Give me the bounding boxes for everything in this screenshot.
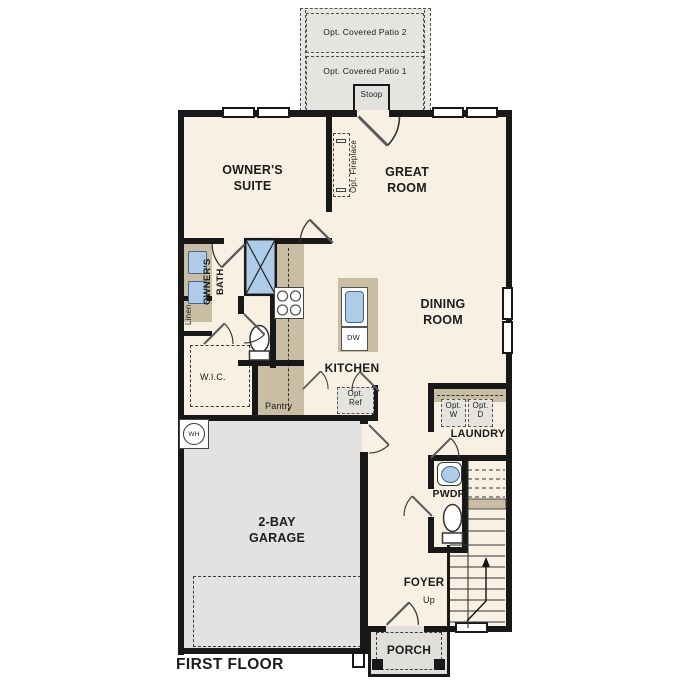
patio1-label: Opt. Covered Patio 1 [310,66,420,77]
fireplace-tick-top [336,139,346,143]
wic-door-swing [203,314,234,345]
linen-label: Linen [184,299,196,331]
stoop-door-swing [357,115,401,159]
wall-garage-right-lower [360,452,368,654]
dw-label: DW [341,327,366,349]
wall-wic-right [252,366,258,415]
stairs [447,461,506,628]
porch-label: PORCH [381,643,437,658]
kitchen-label: KITCHEN [314,361,390,376]
wall-left [178,110,184,655]
island-sink [345,291,364,323]
window-entry-side [352,652,365,668]
window-greatroom-2 [466,107,498,118]
foyer-label: FOYER [400,576,448,590]
wall-pwdr-left-upper [428,461,434,489]
window-suite-2 [257,107,290,118]
stove [274,287,304,319]
window-greatroom-1 [432,107,464,118]
pantry-label: Pantry [265,401,299,412]
wall-suite-divider [326,110,332,212]
wall-toilet-nook-left [238,296,244,314]
garage-door-dashed [193,576,361,647]
wall-right [506,110,512,632]
patio2-label: Opt. Covered Patio 2 [310,27,420,38]
porch-post-right [434,659,445,670]
shower [244,238,277,296]
dining-room-label: DINING ROOM [408,297,478,328]
wall-laundry-top [428,383,512,389]
opt-dryer-label: Opt. D [469,401,492,419]
pwdr-door-swing [403,487,433,517]
floor-plan: WH [0,0,687,687]
pwdr-label: PWDR [431,488,467,501]
front-door-swing [385,592,420,626]
wall-porch-left-stub [366,626,386,632]
garage-door-swing [368,424,398,454]
window-suite-1 [222,107,255,118]
patio-column-line-right [424,10,425,109]
plan-title: FIRST FLOOR [176,655,336,674]
laundry-label: LAUNDRY [446,428,510,442]
fireplace-tick-bottom [336,188,346,192]
owners-bath-label: OWNER'S BATH [202,247,228,317]
suite-door-swing [299,209,334,244]
wh-label: WH [188,431,199,438]
great-room-label: GREAT ROOM [372,165,442,196]
wall-laundry-left [428,383,434,432]
opt-fireplace-label: Opt. Fireplace [349,133,362,199]
laundry-counter-centerline [437,395,503,396]
toilet-nook-door-swing [243,313,274,344]
stoop-label: Stoop [355,90,388,100]
owners-suite-label: OWNER'S SUITE [205,163,300,194]
wic-label: W.I.C. [200,372,236,383]
window-dining-1 [502,287,513,320]
porch-post-left [372,659,383,670]
opt-ref-label: Opt. Ref [338,389,373,407]
garage-label: 2-BAY GARAGE [231,515,323,546]
up-label: Up [423,595,441,606]
water-heater-circle: WH [183,423,205,445]
opt-washer-label: Opt. W [442,401,465,419]
counter-centerline-upper [288,248,289,287]
wall-garage-bottom [178,648,370,654]
window-dining-2 [502,321,513,354]
